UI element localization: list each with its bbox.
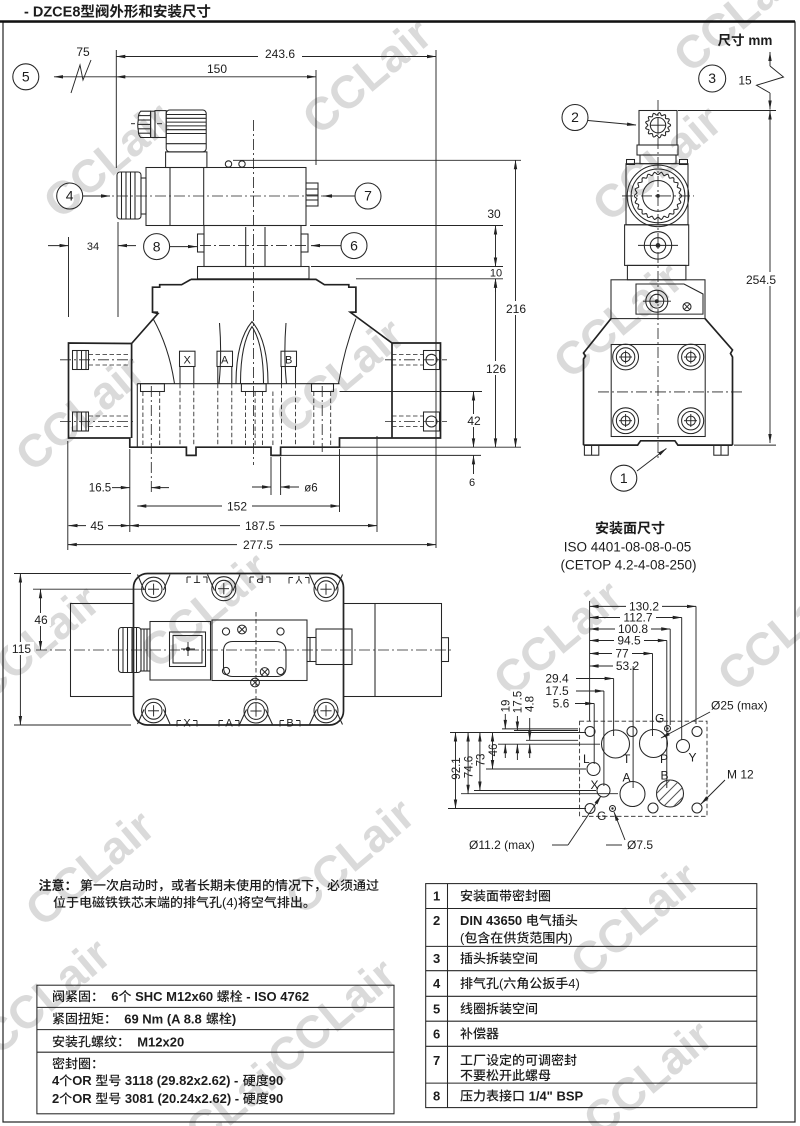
svg-text:(4): (4) bbox=[222, 895, 238, 910]
svg-text:(CETOP 4.2-4-08-250): (CETOP 4.2-4-08-250) bbox=[560, 558, 696, 573]
svg-text:4.8: 4.8 bbox=[525, 696, 537, 712]
svg-text:16.5: 16.5 bbox=[89, 483, 111, 495]
svg-text:90: 90 bbox=[269, 1073, 283, 1088]
svg-text:ISO 4401-08-08-0-05: ISO 4401-08-08-0-05 bbox=[564, 540, 692, 555]
svg-text:3: 3 bbox=[433, 951, 440, 966]
svg-text:B: B bbox=[661, 769, 669, 783]
svg-text:254.5: 254.5 bbox=[746, 273, 776, 287]
svg-text:73: 73 bbox=[476, 754, 488, 767]
svg-text:46: 46 bbox=[34, 613, 48, 627]
svg-text:4: 4 bbox=[433, 976, 441, 991]
svg-text:G: G bbox=[655, 712, 664, 726]
svg-text:46: 46 bbox=[488, 744, 500, 757]
svg-text:X: X bbox=[184, 355, 192, 367]
svg-text:7: 7 bbox=[364, 188, 372, 204]
svg-text:150: 150 bbox=[207, 62, 227, 76]
svg-text:45: 45 bbox=[90, 519, 104, 533]
svg-text:3081 (20.24x2.62) -: 3081 (20.24x2.62) - bbox=[121, 1091, 242, 1106]
svg-text:Ø11.2 (max): Ø11.2 (max) bbox=[469, 838, 535, 852]
svg-text:OR: OR bbox=[72, 1073, 95, 1088]
svg-text:126: 126 bbox=[486, 362, 506, 376]
svg-text:ø6: ø6 bbox=[304, 483, 317, 495]
svg-text:243.6: 243.6 bbox=[265, 47, 295, 61]
svg-text:mm: mm bbox=[745, 33, 773, 48]
svg-text:115: 115 bbox=[12, 642, 31, 656]
svg-text:CCLair: CCLair bbox=[663, 0, 800, 82]
svg-text:90: 90 bbox=[269, 1091, 283, 1106]
svg-text:74.6: 74.6 bbox=[464, 756, 476, 778]
svg-text:A: A bbox=[221, 355, 229, 367]
svg-text:69 Nm (A 8.8: 69 Nm (A 8.8 bbox=[117, 1011, 205, 1026]
svg-text:94.5: 94.5 bbox=[617, 634, 641, 648]
svg-text:Ø25 (max): Ø25 (max) bbox=[711, 699, 768, 713]
svg-text:DIN 43650: DIN 43650 bbox=[460, 913, 526, 928]
svg-text:42: 42 bbox=[467, 414, 481, 428]
svg-text:2: 2 bbox=[52, 1091, 59, 1106]
svg-text:5: 5 bbox=[22, 69, 30, 85]
svg-text:10: 10 bbox=[490, 268, 502, 280]
svg-text:CCLair: CCLair bbox=[33, 91, 182, 228]
svg-text:): ) bbox=[232, 1011, 236, 1026]
svg-text:8: 8 bbox=[153, 238, 161, 254]
svg-text:CCLair: CCLair bbox=[292, 7, 441, 144]
svg-text:A: A bbox=[225, 718, 233, 730]
svg-text:CCLair: CCLair bbox=[707, 564, 800, 701]
svg-text:1: 1 bbox=[433, 889, 440, 904]
svg-text:A: A bbox=[623, 771, 631, 785]
svg-text:187.5: 187.5 bbox=[245, 519, 275, 533]
svg-text:1: 1 bbox=[620, 470, 628, 486]
svg-text:15: 15 bbox=[738, 74, 752, 88]
svg-text:4: 4 bbox=[66, 188, 74, 204]
svg-text:216: 216 bbox=[506, 302, 526, 316]
svg-text:- DZCE8: - DZCE8 bbox=[24, 5, 80, 21]
svg-text:3118 (29.82x2.62) -: 3118 (29.82x2.62) - bbox=[121, 1073, 242, 1088]
svg-text:92.1: 92.1 bbox=[451, 757, 463, 779]
svg-text:G: G bbox=[597, 809, 606, 823]
svg-text:6: 6 bbox=[433, 1026, 440, 1041]
svg-text:3: 3 bbox=[708, 70, 716, 86]
svg-text:B: B bbox=[285, 355, 292, 367]
svg-text:OR: OR bbox=[72, 1091, 95, 1106]
svg-text:T: T bbox=[623, 752, 631, 766]
svg-text:): ) bbox=[568, 931, 572, 946]
svg-text:8: 8 bbox=[433, 1089, 440, 1104]
svg-text:4: 4 bbox=[52, 1073, 60, 1088]
svg-text:2: 2 bbox=[571, 109, 579, 125]
svg-text:L: L bbox=[583, 752, 590, 766]
svg-text:5: 5 bbox=[433, 1001, 440, 1016]
svg-text:4): 4) bbox=[568, 976, 580, 991]
svg-text:(: ( bbox=[460, 931, 465, 946]
svg-text:P: P bbox=[256, 573, 263, 585]
svg-text:CCLair: CCLair bbox=[130, 541, 279, 678]
svg-text:SHC M12x60: SHC M12x60 bbox=[132, 989, 217, 1004]
svg-text:CCLair: CCLair bbox=[573, 1009, 722, 1126]
svg-text:X: X bbox=[183, 718, 191, 730]
svg-text:- ISO 4762: - ISO 4762 bbox=[243, 989, 309, 1004]
svg-text:53.2: 53.2 bbox=[616, 659, 640, 673]
svg-text:Y: Y bbox=[689, 751, 697, 765]
svg-text:X: X bbox=[591, 778, 599, 792]
svg-text:152: 152 bbox=[227, 500, 247, 514]
svg-text:34: 34 bbox=[87, 241, 99, 253]
svg-text:Y: Y bbox=[295, 573, 303, 585]
svg-text:B: B bbox=[286, 718, 293, 730]
svg-text:277.5: 277.5 bbox=[243, 538, 273, 552]
svg-text:M12x20: M12x20 bbox=[130, 1034, 184, 1049]
svg-text:6: 6 bbox=[104, 989, 118, 1004]
svg-text:T: T bbox=[193, 573, 200, 585]
svg-text:1/4" BSP: 1/4" BSP bbox=[525, 1089, 584, 1104]
svg-text:2: 2 bbox=[433, 913, 440, 928]
svg-text:30: 30 bbox=[487, 207, 501, 221]
svg-text:75: 75 bbox=[76, 45, 90, 59]
svg-text:6: 6 bbox=[350, 237, 358, 253]
svg-text:CCLair: CCLair bbox=[275, 787, 424, 924]
svg-text:CCLair: CCLair bbox=[15, 799, 164, 936]
svg-text:M 12: M 12 bbox=[727, 768, 754, 782]
svg-text:CCLair: CCLair bbox=[560, 851, 709, 988]
svg-text:5.6: 5.6 bbox=[553, 697, 570, 711]
svg-text:6: 6 bbox=[469, 477, 475, 489]
svg-text:(: ( bbox=[499, 976, 504, 991]
svg-text:Ø7.5: Ø7.5 bbox=[627, 838, 653, 852]
svg-text:17.5: 17.5 bbox=[512, 691, 524, 713]
svg-text:7: 7 bbox=[433, 1053, 440, 1068]
